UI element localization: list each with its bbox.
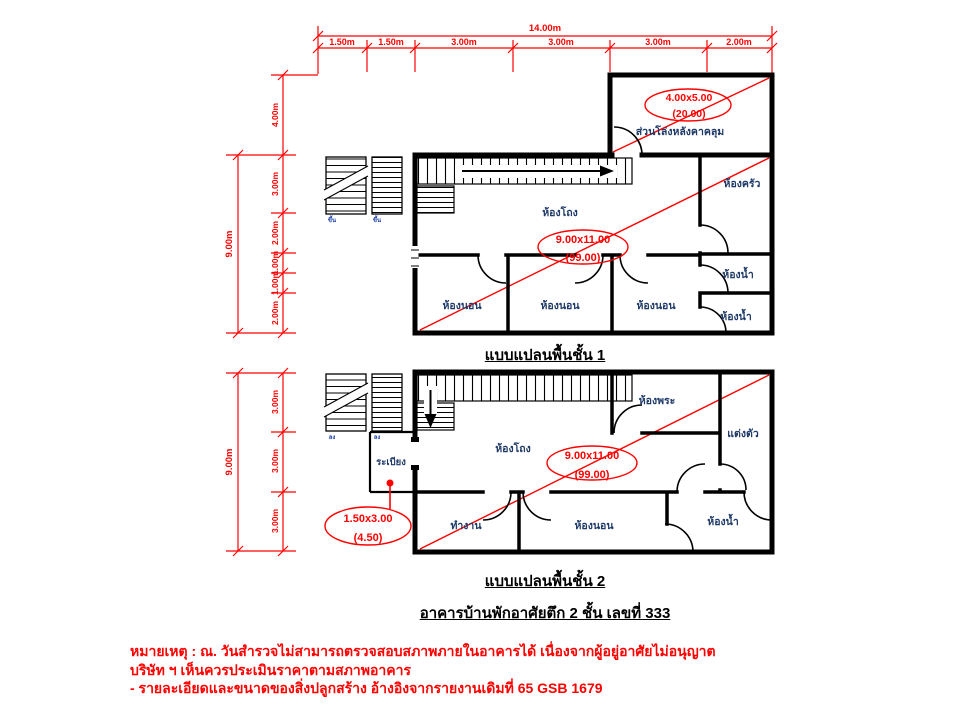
room-label-dressing: แต่งตัว [727, 428, 759, 440]
annex-size: 4.00x5.00 [666, 92, 713, 104]
room-label-bath: ห้องน้ำ [720, 308, 752, 323]
dim-total-height: 9.00m [224, 231, 235, 258]
stair-down-label: ลง [329, 434, 336, 441]
stair-up-label: ขึ้น [373, 214, 382, 224]
floor-plan-sheet: 14.00m 1.50m 1.50m 3.00m 3.00m 3.00m 2.0… [0, 0, 960, 720]
room-label-kitchen: ห้องครัว [724, 177, 761, 190]
room-label-bedroom: ห้องนอน [540, 299, 580, 312]
floor2-plan: 9.00x11.00 (99.00) 1.50x3.00 (4.50) ห้อง… [324, 372, 772, 552]
stair-run [417, 375, 632, 401]
dim-seg: 3.00m [270, 172, 280, 197]
main-area: (99.00) [566, 252, 601, 264]
dim-seg: 2.00m [270, 221, 280, 246]
floor1-caption: แบบแปลนพื้นชั้น 1 [395, 343, 695, 367]
floor2-caption: แบบแปลนพื้นชั้น 2 [395, 569, 695, 593]
top-dimension-lines: 14.00m 1.50m 1.50m 3.00m 3.00m 3.00m 2.0… [313, 23, 777, 74]
main-size: 9.00x11.00 [565, 450, 619, 462]
floor1-left-dimension: 9.00m 4.00m 3.00m 2.00m 1.00m 1.00m 2.00… [224, 70, 318, 338]
room-label-hall: ห้องโถง [495, 442, 530, 455]
stair-up-label: ขึ้น [328, 214, 337, 224]
floor-plan-drawing: 14.00m 1.50m 1.50m 3.00m 3.00m 3.00m 2.0… [0, 0, 960, 640]
stair-flight [372, 157, 402, 214]
floor1-plan: 4.00x5.00 (20.00) 9.00x11.00 (99.00) ส่ว… [324, 75, 772, 333]
room-label-bedroom: ห้องนอน [574, 519, 614, 532]
dim-total-height: 9.00m [224, 449, 235, 476]
dimension-line [226, 373, 296, 551]
dim-seg: 3.00m [270, 449, 280, 474]
main-area: (99.00) [575, 469, 610, 481]
note-line: บริษัท ฯ เห็นควรประเมินราคาตามสภาพอาคาร [130, 661, 870, 680]
note-line: หมายเหตุ : ณ. วันสำรวจไม่สามารถตรวจสอบสภ… [130, 642, 870, 661]
stair-flight [372, 374, 402, 431]
door-jamb [411, 465, 419, 470]
dim-seg: 3.00m [270, 390, 280, 415]
sheet-title: อาคารบ้านพักอาศัยตึก 2 ชั้น เลขที่ 333 [330, 601, 760, 625]
dim-seg: 1.50m [378, 37, 404, 47]
dim-seg: 1.00m [270, 271, 280, 296]
room-label-balcony: ระเบียง [376, 456, 406, 468]
dim-seg: 1.50m [329, 37, 355, 47]
stair-down-label: ลง [374, 434, 381, 441]
notes-block: หมายเหตุ : ณ. วันสำรวจไม่สามารถตรวจสอบสภ… [130, 642, 870, 698]
annex-area: (20.00) [672, 108, 705, 120]
dim-seg: 3.00m [270, 509, 280, 534]
main-size: 9.00x11.00 [556, 234, 610, 246]
note-line: - รายละเอียดและขนาดของสิ่งปลูกสร้าง อ้าง… [130, 679, 870, 698]
dim-seg: 4.00m [270, 103, 280, 128]
door-jamb [411, 437, 419, 442]
dim-seg: 2.00m [270, 301, 280, 326]
stair-run [417, 186, 454, 213]
room-label-bath: ห้องน้ำ [722, 266, 754, 281]
dim-seg: 3.00m [451, 37, 477, 47]
room-label-bedroom: ห้องนอน [442, 299, 482, 312]
dim-seg: 2.00m [726, 37, 752, 47]
wall-opening [412, 246, 419, 268]
room-label-work: ทำงาน [450, 520, 482, 532]
room-label-annex: ส่วนโล่งหลังคาคลุม [636, 125, 725, 139]
balcony-area: (4.50) [354, 532, 383, 544]
room-label-hall: ห้องโถง [542, 206, 577, 219]
room-label-bath: ห้องน้ำ [707, 513, 739, 528]
dim-seg: 3.00m [548, 37, 574, 47]
dim-seg: 3.00m [645, 37, 671, 47]
balcony-size: 1.50x3.00 [344, 513, 393, 525]
dim-total-width: 14.00m [529, 23, 561, 34]
room-label-bedroom: ห้องนอน [636, 299, 676, 312]
floor2-left-dimension: 9.00m 3.00m 3.00m 3.00m [224, 368, 296, 556]
room-label-prayer: ห้องพระ [639, 394, 676, 407]
wall-opening [412, 441, 419, 466]
